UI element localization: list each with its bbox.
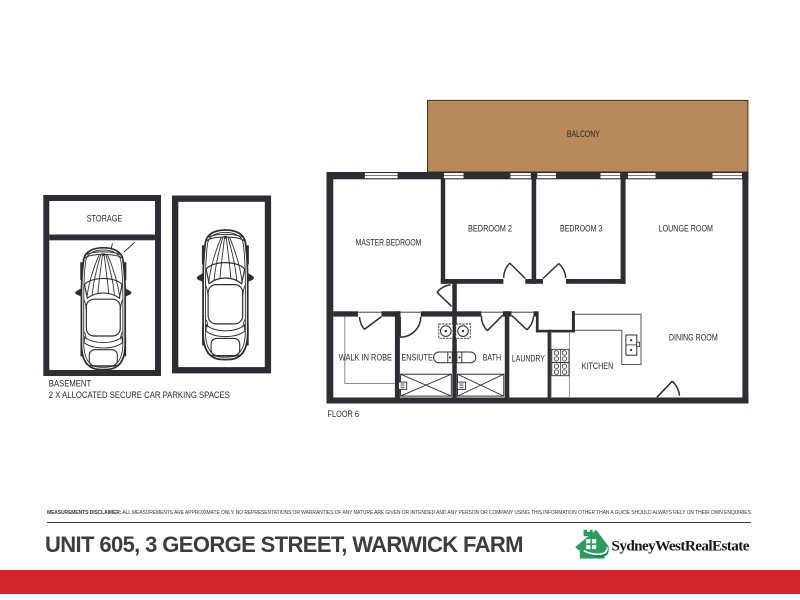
- svg-text:SydneyWestRealEstate: SydneyWestRealEstate: [612, 538, 750, 555]
- svg-text:BATH: BATH: [483, 353, 501, 363]
- svg-text:KITCHEN: KITCHEN: [582, 361, 614, 371]
- svg-text:BEDROOM 2: BEDROOM 2: [468, 224, 512, 234]
- svg-text:MASTER BEDROOM: MASTER BEDROOM: [356, 237, 422, 247]
- svg-text:BALCONY: BALCONY: [567, 129, 600, 139]
- svg-text:ENSIUTE: ENSIUTE: [401, 353, 433, 363]
- svg-text:DINING ROOM: DINING ROOM: [669, 332, 718, 342]
- svg-text:BASEMENT: BASEMENT: [49, 379, 92, 389]
- svg-text:STORAGE: STORAGE: [87, 214, 123, 224]
- svg-text:BEDROOM 3: BEDROOM 3: [560, 224, 603, 234]
- svg-text:LAUNDRY: LAUNDRY: [512, 354, 545, 364]
- svg-text:FLOOR 6: FLOOR 6: [328, 409, 360, 419]
- svg-text:UNIT 605, 3 GEORGE STREET, WAR: UNIT 605, 3 GEORGE STREET, WARWICK FARM: [45, 532, 523, 557]
- svg-text:LOUNGE ROOM: LOUNGE ROOM: [659, 224, 713, 234]
- svg-text:WALK IN ROBE: WALK IN ROBE: [339, 352, 392, 362]
- svg-text:MEASUREMENTS DISCLAIMER: ALL M: MEASUREMENTS DISCLAIMER: ALL MEASUREMENT…: [47, 510, 752, 516]
- svg-text:2 X ALLOCATED SECURE CAR PARKI: 2 X ALLOCATED SECURE CAR PARKING SPACES: [49, 390, 230, 400]
